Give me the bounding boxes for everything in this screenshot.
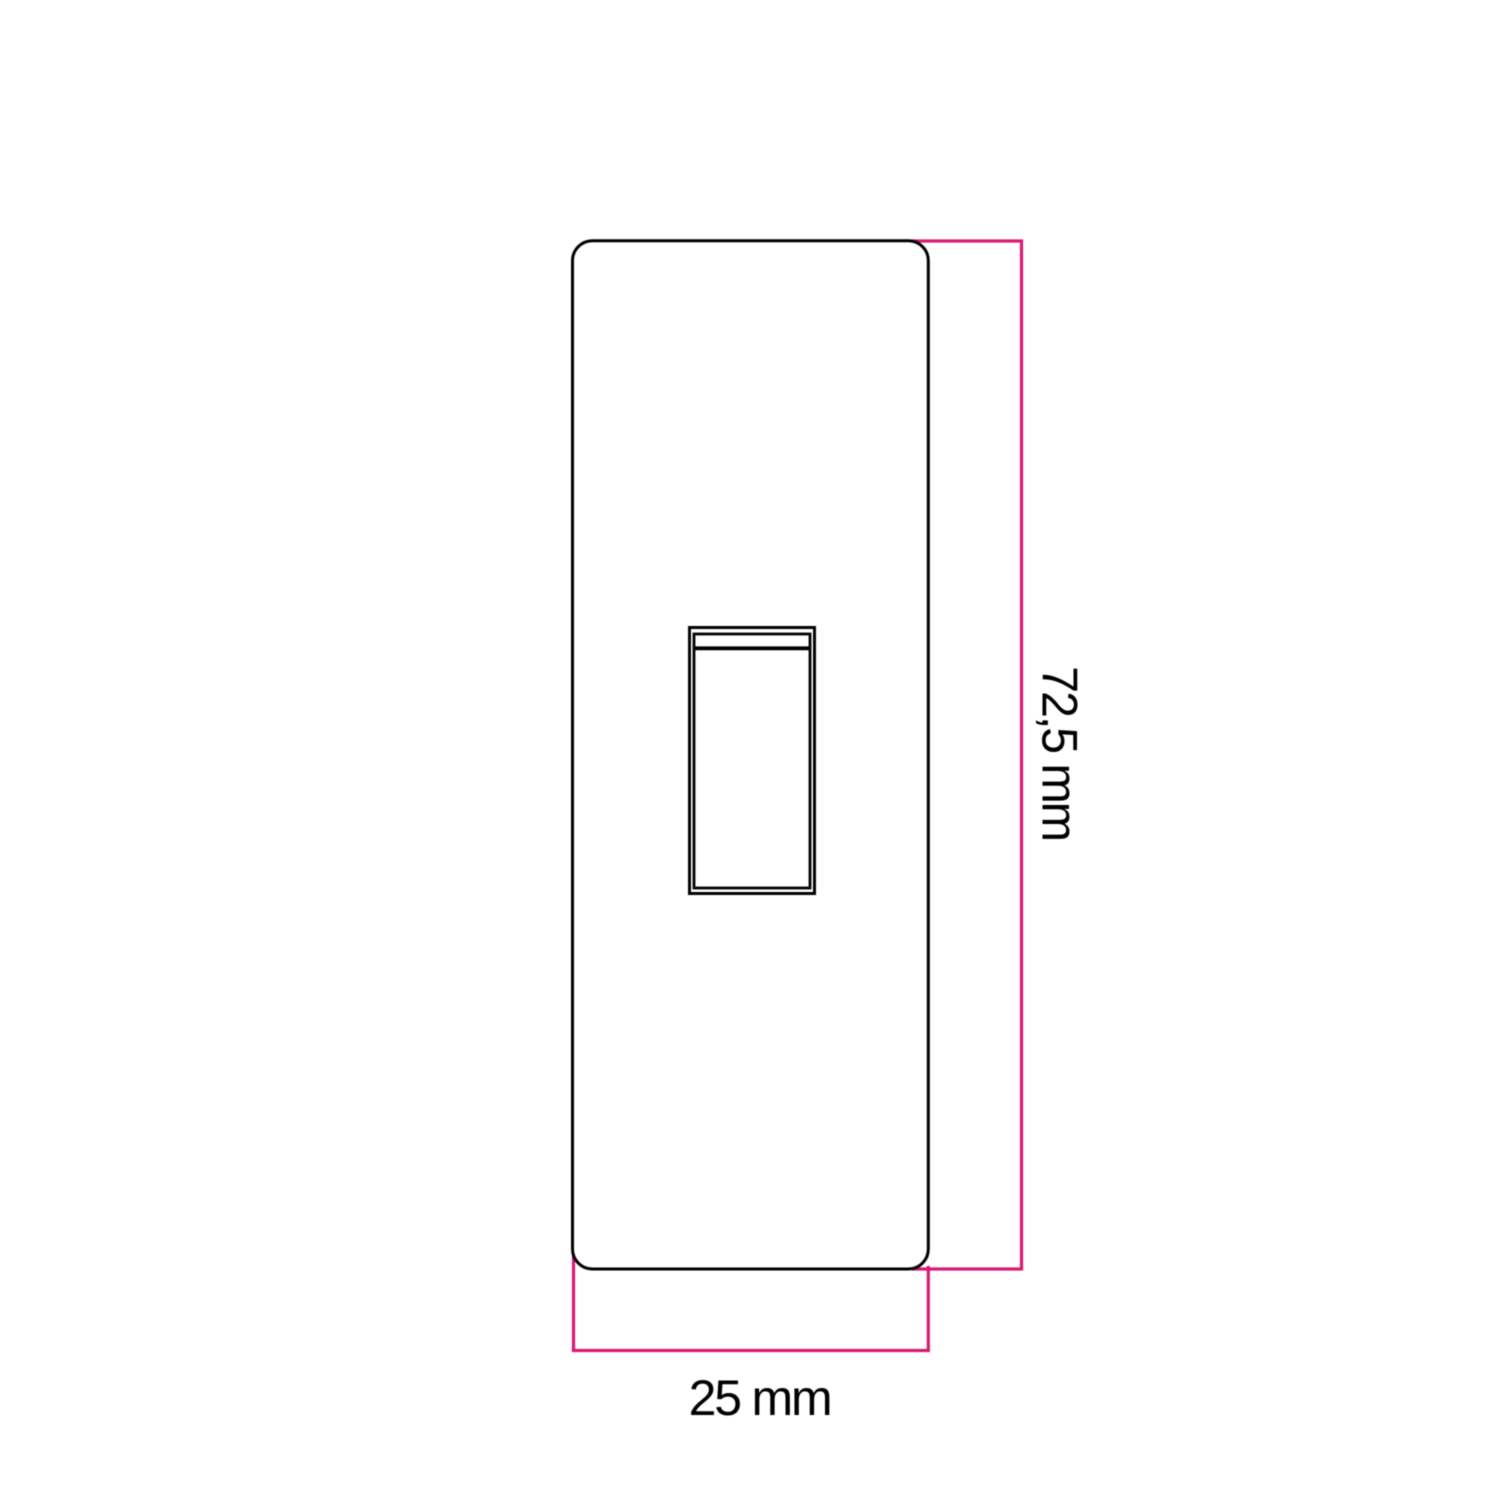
svg-text:72,5 mm: 72,5 mm (1031, 666, 1087, 840)
svg-text:25 mm: 25 mm (689, 1370, 831, 1426)
